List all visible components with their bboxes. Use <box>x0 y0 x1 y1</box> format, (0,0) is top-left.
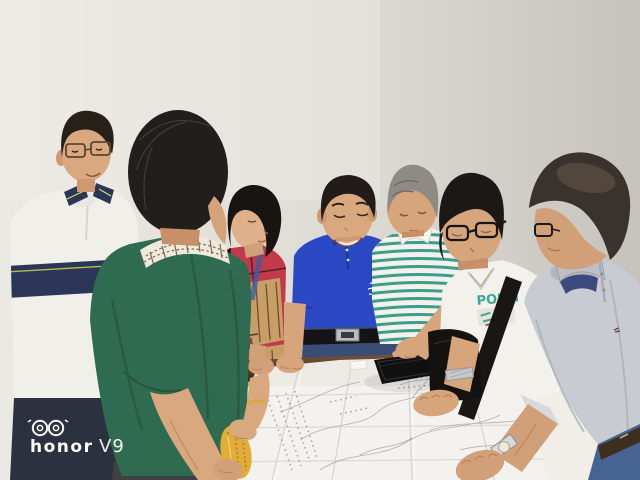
watermark-model: V9 <box>99 436 125 457</box>
neck <box>160 228 200 246</box>
watermark-brand: honor <box>30 437 93 457</box>
hand <box>276 355 304 373</box>
neck <box>77 179 95 192</box>
photo-group-around-map: POEM <box>0 0 640 480</box>
hand <box>248 357 274 375</box>
paper-card <box>350 360 367 370</box>
watch-face <box>499 442 510 453</box>
